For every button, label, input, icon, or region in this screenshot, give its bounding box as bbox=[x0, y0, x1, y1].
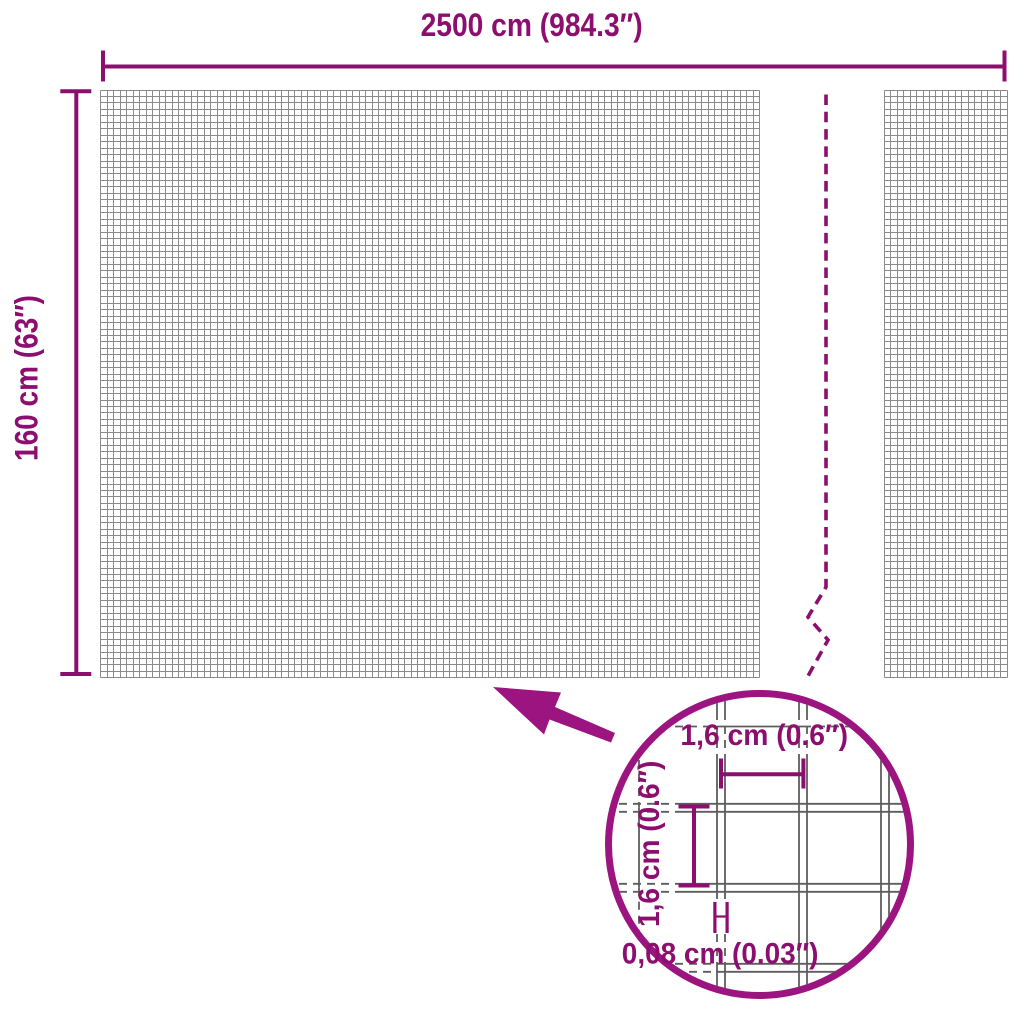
svg-text:0,08 cm (0.03″): 0,08 cm (0.03″) bbox=[622, 938, 819, 971]
svg-text:1,6 cm (0.6″): 1,6 cm (0.6″) bbox=[633, 761, 666, 927]
svg-text:1,6 cm (0.6″): 1,6 cm (0.6″) bbox=[680, 719, 848, 752]
svg-text:2500 cm (984.3″): 2500 cm (984.3″) bbox=[421, 7, 643, 43]
svg-text:160 cm (63″): 160 cm (63″) bbox=[9, 295, 45, 461]
